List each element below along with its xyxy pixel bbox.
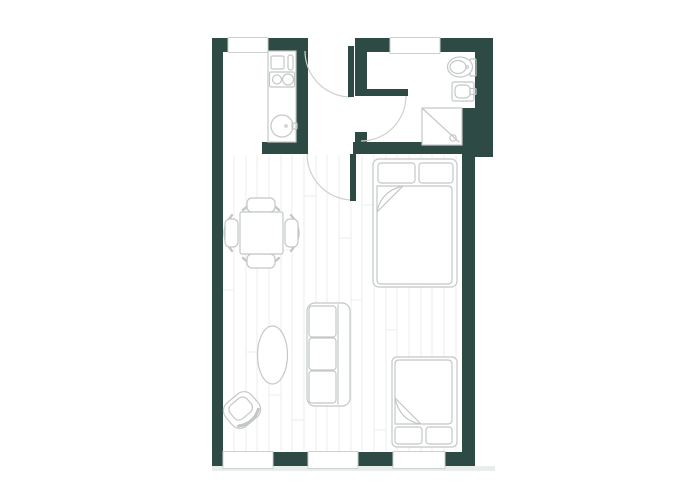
- dining-set: [225, 198, 299, 268]
- wall-left-outer: [212, 38, 223, 466]
- armchair: [219, 388, 264, 433]
- double-bed: [373, 159, 457, 287]
- wall-right-outer: [462, 145, 475, 466]
- bottom-window-right: [393, 452, 445, 469]
- toilet: [448, 57, 477, 77]
- living-room-door-arc: [307, 154, 353, 200]
- chair-right-seat: [285, 219, 298, 247]
- sofa-outline: [307, 303, 350, 406]
- kitchen-window: [228, 38, 268, 53]
- bathroom-door-arc: [361, 96, 406, 141]
- dining-table: [240, 212, 283, 254]
- washbasin: [452, 82, 476, 101]
- entrance-door-arc: [305, 51, 351, 97]
- shower: [422, 108, 462, 145]
- oval-rug: [258, 326, 288, 384]
- bathroom-window: [390, 38, 440, 54]
- entrance-door-leaf: [348, 46, 354, 97]
- bottom-window-middle: [308, 452, 358, 469]
- wall-bathroom-door-stub: [355, 132, 367, 144]
- bathroom-door-leaf: [361, 89, 408, 96]
- furniture: [219, 51, 476, 447]
- double-bed-duvet: [377, 186, 452, 284]
- wall-bathroom-left: [355, 38, 367, 96]
- second-bed: [392, 357, 457, 447]
- sofa: [307, 303, 350, 406]
- chair-bottom-seat: [247, 254, 275, 268]
- wall-bathroom-right-upper: [475, 38, 493, 108]
- wall-kitchen-bottom: [262, 142, 308, 154]
- chair-left-seat: [225, 219, 238, 247]
- wall-kitchen-right: [296, 38, 308, 154]
- chair-top-seat: [247, 198, 275, 212]
- floor-plan-canvas: [0, 0, 700, 500]
- bottom-window-left: [223, 452, 273, 469]
- kitchen-fixtures: [268, 51, 297, 142]
- living-room-door-leaf: [350, 154, 356, 201]
